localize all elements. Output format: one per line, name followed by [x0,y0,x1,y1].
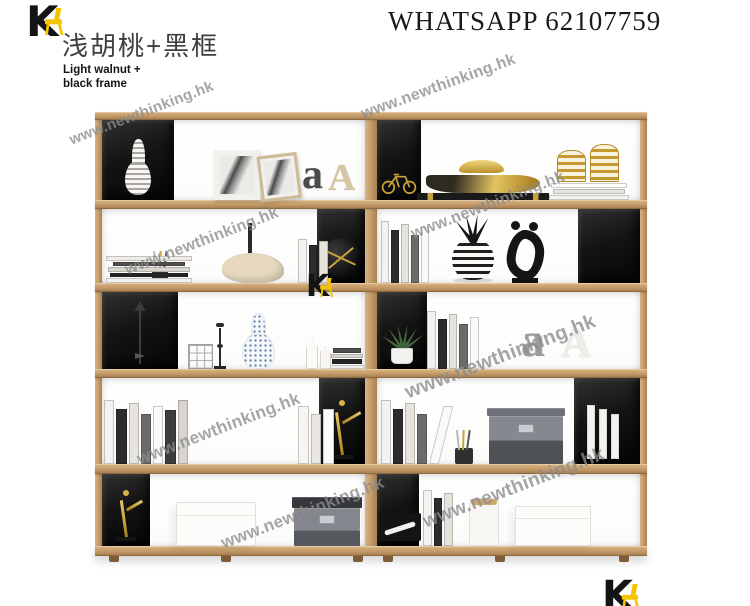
candle-knob [217,344,223,348]
black-abstract-sculpture [503,221,547,283]
frame-art [220,156,254,194]
book [553,189,625,194]
figurine-base [116,537,137,541]
gray-box-stack [489,408,563,464]
variant-title-en-line1: Light walnut + [63,64,141,78]
book [449,314,458,369]
gold-striped-jars [557,144,619,182]
cup [455,448,473,464]
storage-box [487,408,565,416]
stacked-books [106,255,192,283]
book [104,400,114,464]
black-frame-box [578,209,640,283]
black-frame-box [102,120,174,200]
book [381,221,389,283]
frame-art [263,159,295,196]
shelf-compartment [102,474,365,546]
vase-neck [251,313,266,335]
round-black-ornament [216,406,288,464]
letter-a-ornament: a [521,321,545,369]
ring-nub [529,222,538,231]
ring-loop [504,228,545,281]
brand-logo: K [26,1,59,43]
jar [557,150,586,182]
folder [599,409,607,459]
shelf-board [95,546,647,556]
book [417,414,427,464]
black-frame-box [574,378,640,464]
shelf-board [95,369,647,378]
pen [462,430,465,450]
black-frame-box [102,292,178,369]
variant-title-cn: 浅胡桃+黑框 [62,26,219,63]
book [108,267,191,272]
whatsapp-contact: WHATSAPP 62107759 [388,6,661,37]
shelf-foot [353,556,363,562]
black-frame-box [377,120,421,200]
storage-box [294,530,360,546]
gray-storage-boxes [294,494,360,546]
white-canister [469,498,499,546]
book [323,409,334,464]
book [113,262,185,267]
gold-figurine-small [113,489,139,541]
book [298,406,309,464]
canister-lid [471,499,497,505]
vase-body [242,332,275,369]
folder [611,414,619,459]
book [423,490,432,546]
letter-A-ornament: A [328,162,355,200]
book [551,183,628,188]
shelf-foot [109,556,119,562]
shelf-foot [619,556,629,562]
book [427,311,436,369]
product-image-page: K 浅胡桃+黑框 Light walnut + black frame WHAT… [0,0,750,606]
swoosh [384,521,416,536]
book [444,493,453,546]
candle-cup [216,323,223,327]
bicycle-icon [381,169,417,195]
watermark-logo-bottom-right: K [602,576,633,606]
arrow-head [134,302,145,311]
book [411,235,419,283]
vase-neck [132,139,145,164]
bookshelf-photo: aAaA [95,110,647,562]
letter-A-ornament: A [561,327,591,369]
books [423,490,455,546]
letter-a-ornament: a [302,158,323,200]
white-books [298,406,336,464]
boat-hull [426,175,540,193]
gold-bicycle-figurine [381,169,417,195]
chair-icon [619,584,642,606]
book [311,414,322,464]
variant-title-en: Light walnut + black frame [63,64,141,92]
metal-label [518,424,534,433]
book [330,365,364,370]
black-frame-box [377,292,427,369]
shelf-compartment [377,378,640,464]
black-frame-box [102,474,150,546]
folder [587,405,595,459]
vase-body [125,160,151,195]
box-lid-line [516,518,590,519]
shelf-compartment: aA [377,292,640,369]
shelf-board [95,200,647,209]
book [429,406,453,464]
book [110,273,187,278]
book [438,319,447,369]
book [381,400,391,464]
figurine-arm [126,499,143,511]
black-frame-box [377,474,419,546]
row-of-books [104,400,190,464]
shelf-compartment [377,209,640,283]
shelf-board [95,112,647,120]
shelf-foot [495,556,505,562]
book [141,414,151,464]
pineapple-body [452,239,494,280]
white-box [515,506,591,546]
storage-box [292,497,362,508]
leaning-picture-frame [257,152,302,203]
house-shape [306,340,318,369]
blue-white-porcelain-vase [242,313,275,369]
black-pen-cup [455,430,473,464]
figurine-body [120,500,128,537]
shelf-board [95,283,647,292]
shelf-foot [383,556,393,562]
book [106,256,192,261]
books [427,311,481,369]
shelf-compartment [377,120,640,200]
black-ornament-box [379,513,421,541]
book [106,278,192,283]
shelf-side-panel [365,112,377,556]
book [331,354,364,359]
boat-canopy [459,160,504,174]
shelf-compartment [102,378,365,464]
book [549,195,629,200]
candle-base [214,366,226,369]
book [393,409,403,464]
rhino-sculpture [222,253,284,283]
row-of-books [381,221,431,283]
book [470,317,479,369]
book [165,410,175,464]
book [459,324,468,369]
book [434,498,443,546]
shelf-side-panel [95,112,102,556]
white-striped-vase [125,139,151,195]
book-stack [330,347,364,369]
gold-boat-sculpture [417,154,549,200]
watermark-logo-center: K [306,272,329,302]
plant-pot [391,348,413,364]
book [116,409,126,464]
storage-box [294,508,360,530]
black-candlestick [214,323,226,369]
pineapple-vase [449,213,497,283]
book [178,400,188,464]
book [332,359,363,364]
box-lid-line [177,515,255,516]
shelf-compartment [377,474,640,546]
white-folders [587,405,627,459]
book [405,403,415,464]
white-picture-frame [214,150,260,200]
storage-box [489,416,563,440]
ring-nub [511,221,520,230]
chair-icon [318,278,335,297]
white-house-ornaments [306,337,332,369]
pen [466,430,471,450]
book [129,403,139,464]
shelf-compartment: aA [102,120,365,200]
storage-box [489,440,563,464]
white-storage-box [176,502,256,546]
pen [456,430,460,450]
jar [590,144,619,182]
book [333,348,362,353]
book [153,406,163,464]
book [391,230,399,283]
book [401,224,409,283]
white-book-stack [549,182,629,200]
figurine-head [123,490,129,496]
shelf-board [95,464,647,474]
figurine-head [339,400,345,406]
book [421,227,429,283]
shelf-side-panel [640,112,647,556]
leaning-books [381,400,441,464]
variant-title-en-line2: black frame [63,78,141,92]
potted-succulent [385,320,419,364]
wire-cube-ornament [188,344,213,369]
figurine-arm [342,411,362,424]
arrow-ornament [127,302,153,364]
metal-label [319,515,335,524]
figurine-body [335,412,344,455]
shelf-foot [221,556,231,562]
boat-base [417,193,549,200]
